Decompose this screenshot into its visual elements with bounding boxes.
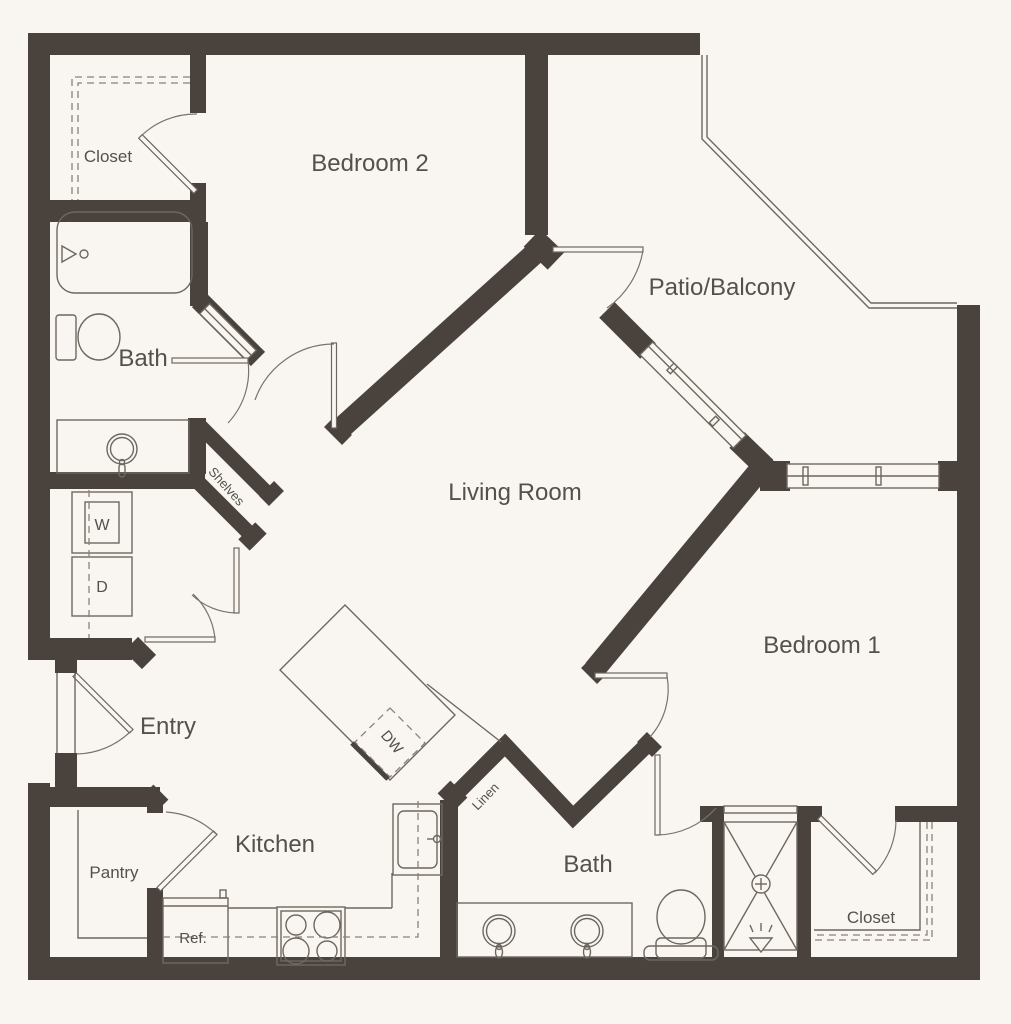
- hall-door-a-arc: [192, 595, 236, 613]
- wall-bottom: [28, 957, 980, 980]
- refrigerator: [163, 890, 228, 963]
- shower-wall-right: [797, 822, 811, 957]
- wall-bedroom2-right: [525, 33, 548, 235]
- room-label-bedroom-2: Bedroom 2: [311, 150, 428, 177]
- closet-top-shelf-dash-1: [72, 77, 190, 200]
- hall-door-b-arc: [193, 594, 215, 639]
- stove: [277, 907, 345, 965]
- wall-right: [957, 305, 980, 980]
- room-label-closet-top: Closet: [84, 147, 132, 166]
- room-label-living-room: Living Room: [448, 479, 581, 506]
- patio-door-arc: [607, 250, 643, 308]
- bathtub: [57, 212, 192, 293]
- kitchen-island: [280, 605, 455, 780]
- kitchen-counter: [228, 873, 392, 908]
- floor-plan-page: Bedroom 2 Closet Bath Patio/Balcony Livi…: [0, 0, 1011, 1024]
- pantry-door-arc: [166, 812, 216, 834]
- label-dryer: D: [96, 579, 108, 596]
- closet-top-door-leaf: [139, 135, 198, 194]
- room-label-kitchen: Kitchen: [235, 831, 315, 858]
- bath-bottom-door-leaf: [655, 755, 660, 835]
- wall-left-lower: [28, 783, 50, 980]
- bedroom1-window: [787, 464, 939, 488]
- room-label-bath-bottom: Bath: [563, 851, 612, 878]
- wall-bedroom2-diagonal: [338, 246, 543, 431]
- wall-top: [28, 33, 700, 55]
- floor-plan: Bedroom 2 Closet Bath Patio/Balcony Livi…: [0, 0, 1011, 1024]
- bedroom2-door-leaf: [332, 343, 337, 428]
- wall-wd-bottom-cap: [131, 644, 149, 662]
- bath-top-door-arc: [228, 361, 249, 423]
- closet-bottom-door-arc: [875, 820, 896, 873]
- bedroom1-door-arc: [650, 676, 668, 737]
- wall-pantry-right: [147, 888, 163, 963]
- patio-railing: [702, 55, 957, 308]
- room-label-patio-balcony: Patio/Balcony: [649, 274, 796, 301]
- bedroom2-door-arc: [255, 344, 334, 400]
- wall-closet-top-right-a: [190, 55, 206, 113]
- closet-top-shelf-dash-2: [78, 83, 190, 200]
- hall-door-b-leaf: [145, 637, 215, 642]
- wall-closet-bottom-top: [895, 806, 957, 822]
- windows: [200, 304, 939, 813]
- wall-bath-top: [50, 200, 206, 222]
- hall-door-a-leaf: [234, 548, 239, 613]
- label-washer: W: [94, 517, 110, 534]
- shower: [724, 822, 797, 952]
- wall-window-right-stub: [938, 461, 957, 491]
- closet-top-door-arc: [140, 114, 197, 137]
- wall-kitchen-bath: [440, 800, 458, 957]
- toilet-lower: [644, 890, 718, 960]
- entry-door-arc: [77, 731, 131, 754]
- shower-glass-front: [724, 806, 797, 813]
- wall-left-upper: [28, 33, 50, 660]
- bath-diagonal-window: [200, 304, 257, 361]
- patio-door-leaf: [553, 247, 643, 252]
- room-label-pantry: Pantry: [89, 863, 139, 882]
- vanity-sink-upper: [57, 420, 189, 477]
- pantry-door-leaf: [157, 831, 217, 891]
- wall-vanity-bottom: [50, 472, 205, 489]
- entry-door-stub-top: [55, 640, 77, 673]
- entry-door-leaf: [73, 673, 133, 733]
- double-vanity-lower: [457, 903, 632, 958]
- label-refrigerator: Ref.: [179, 930, 207, 947]
- toilet-upper: [56, 314, 120, 360]
- room-label-entry: Entry: [140, 713, 196, 740]
- wall-bedroom1-diagonal: [594, 466, 763, 670]
- bath-top-door-leaf: [172, 358, 248, 363]
- bedroom1-door-leaf: [595, 673, 667, 678]
- pantry-door-stub-top: [147, 800, 163, 813]
- closet-bottom-door-leaf: [818, 816, 877, 875]
- room-label-closet-bottom: Closet: [847, 908, 895, 927]
- wall-patio-diagonal-upper: [607, 310, 648, 351]
- entry-door-stub-bottom: [55, 753, 77, 787]
- label-dishwasher: DW: [377, 727, 407, 758]
- wall-pantry-top: [28, 787, 160, 807]
- linen-front-line: [427, 684, 501, 742]
- dishwasher-front: [352, 743, 388, 779]
- room-label-bath-top: Bath: [118, 345, 167, 372]
- shower-wall-left: [712, 818, 724, 957]
- room-label-bedroom-1: Bedroom 1: [763, 632, 880, 659]
- patio-sliding-window: [640, 342, 746, 448]
